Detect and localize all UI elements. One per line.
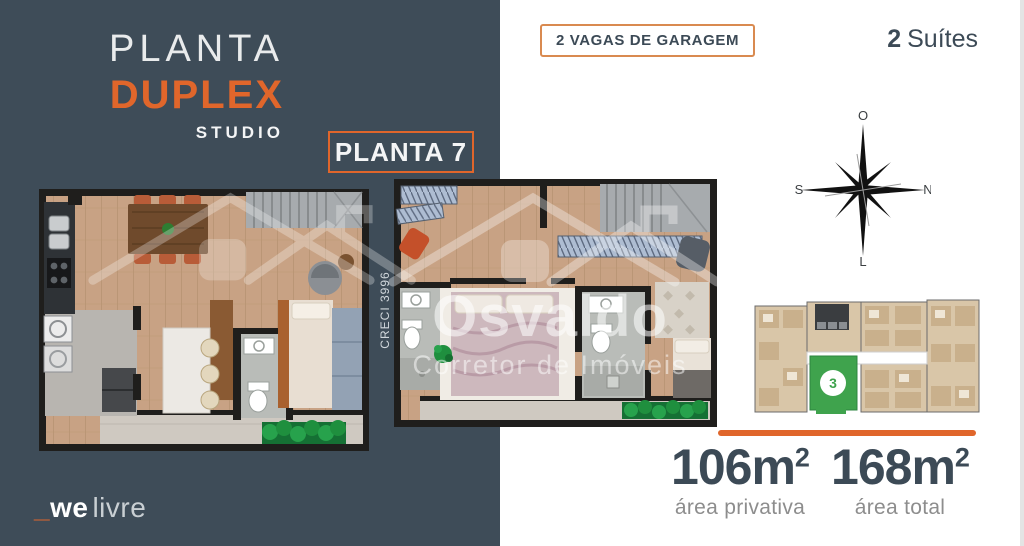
accent-divider: [718, 430, 976, 436]
private-area-label: área privativa: [660, 496, 820, 520]
garage-badge: 2 VAGAS DE GARAGEM: [540, 24, 755, 57]
suites-number: 2: [887, 25, 901, 53]
planta-7-badge: PLANTA 7: [328, 131, 474, 173]
title-studio: STUDIO: [58, 124, 284, 141]
upper-floor-plan: [393, 178, 718, 428]
title-block: PLANTA DUPLEX STUDIO: [58, 30, 284, 141]
building-site-plan: 3: [753, 298, 981, 422]
planta-7-label: PLANTA 7: [335, 137, 467, 168]
compass-rose-icon: O N L S: [795, 110, 931, 266]
garage-badge-label: 2 VAGAS DE GARAGEM: [556, 32, 739, 49]
total-area-label: área total: [824, 496, 976, 520]
compass-north-label: N: [923, 182, 931, 197]
total-area-block: 168m2 área total: [824, 442, 976, 520]
compass-south-label: S: [795, 182, 804, 197]
logo-livre: livre: [92, 492, 146, 523]
suites-label: 2Suítes: [860, 25, 978, 54]
compass-west-label: O: [858, 110, 868, 123]
ground-floor-plan: [38, 188, 370, 452]
flyer-canvas: PLANTA DUPLEX STUDIO PLANTA 7: [0, 0, 1024, 546]
total-area-value: 168m2: [824, 442, 976, 492]
private-area-value: 106m2: [660, 442, 820, 492]
logo-underscore: _: [34, 492, 50, 523]
compass-east-label: L: [859, 254, 866, 266]
welivre-logo: _welivre: [34, 492, 146, 524]
suites-text: Suítes: [907, 25, 978, 53]
logo-we: we: [50, 492, 88, 523]
title-duplex: DUPLEX: [58, 75, 284, 115]
right-edge-strip: [1020, 0, 1024, 546]
site-plan-unit-number: 3: [829, 375, 837, 391]
title-planta: PLANTA: [58, 30, 284, 68]
private-area-block: 106m2 área privativa: [660, 442, 820, 520]
